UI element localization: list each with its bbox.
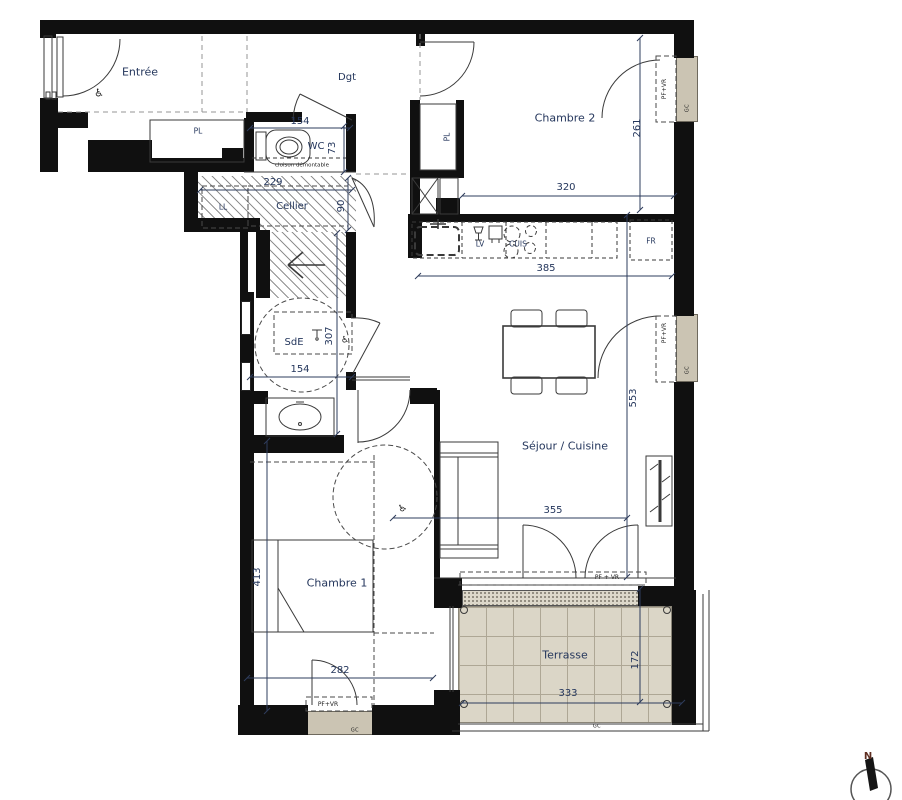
chambre1-door <box>358 390 410 443</box>
room-label-sejour: Séjour / Cuisine <box>522 441 608 452</box>
room-label-terrasse: Terrasse <box>542 650 587 661</box>
fixture-label-pl-entree: PL <box>194 127 203 135</box>
fixture-label-pl-chambre2: PL <box>443 133 451 142</box>
dim-chambre1-width: 282 <box>330 666 349 676</box>
room-label-cellier: Cellier <box>276 202 308 212</box>
room-label-sde: SdE <box>284 338 303 348</box>
fixture-label-ll: LL <box>219 203 227 211</box>
dim-terrasse-depth: 172 <box>631 650 641 669</box>
room-label-entree: Entrée <box>122 67 158 78</box>
window-label-pfvr-chambre2: PF+VR <box>662 79 668 99</box>
window-label-pfvr-chambre1: PF+VR <box>318 702 338 708</box>
dim-chambre1-depth: 413 <box>253 567 263 586</box>
sde-door <box>353 318 380 373</box>
door-label-pfvr-terrasse: PF + VR <box>595 575 619 581</box>
sill-label-gc-chambre1: GC <box>351 729 359 734</box>
wheelchair-icon-sde: ♿ <box>341 337 349 346</box>
dim-cellier-width: 229 <box>263 178 282 188</box>
shower-arrow-icon <box>288 252 325 278</box>
wheelchair-icon-entree: ♿ <box>94 88 104 99</box>
sill-label-gc-chambre2: GC <box>686 104 691 112</box>
fixture-label-cuis: CUIS <box>509 240 527 248</box>
toilet-icon <box>256 130 310 164</box>
dim-wc-depth: 73 <box>328 142 338 155</box>
room-label-chambre1: Chambre 1 <box>307 578 368 589</box>
window-label-pfvr-sejour: PF+VR <box>662 323 668 343</box>
fixture-label-lv: LV <box>476 240 485 248</box>
dim-sejour-depth: 553 <box>629 388 639 407</box>
cellier-door <box>352 178 374 227</box>
room-label-chambre2: Chambre 2 <box>535 113 596 124</box>
window-swings <box>312 60 660 705</box>
dim-sde-width: 154 <box>290 365 309 375</box>
sofa-icon <box>440 442 498 558</box>
chambre2-door <box>420 42 474 96</box>
floor-plan: Entrée Dgt WC Chambre 2 Cellier SdE Séjo… <box>0 0 902 800</box>
guardrail-label-gc-terrasse: GC <box>593 725 601 730</box>
sink-icon <box>415 227 459 255</box>
room-label-wc: WC <box>308 142 325 152</box>
dim-sde-depth: 307 <box>325 326 335 345</box>
dim-terrasse-width: 333 <box>558 689 577 699</box>
plan-linework <box>0 0 902 800</box>
north-compass <box>851 757 891 800</box>
room-label-dgt: Dgt <box>338 73 356 83</box>
sill-label-gc-sejour: GC <box>686 366 691 374</box>
dashed-guides <box>58 34 434 705</box>
fixture-label-fr: FR <box>646 237 656 245</box>
north-label: N <box>864 752 872 762</box>
dining-table-icon <box>503 310 595 394</box>
washbasin-icon <box>266 398 334 436</box>
kitchen-counter <box>412 219 672 260</box>
dim-cuisine-width: 385 <box>536 264 555 274</box>
window-dashed-boxes <box>306 56 676 711</box>
dim-chambre2-width: 320 <box>556 183 575 193</box>
sde-faucet-icon <box>312 330 322 340</box>
dim-cellier-depth: 90 <box>337 200 347 213</box>
note-cloison-demontable: cloison démontable <box>275 163 329 169</box>
dim-chambre2-depth: 261 <box>633 118 643 137</box>
entrance-door <box>44 36 120 99</box>
dim-sejour-width: 355 <box>543 506 562 516</box>
radiator-icon <box>646 456 672 526</box>
dim-wc-width: 154 <box>290 117 309 127</box>
dimension-lines <box>197 35 685 714</box>
